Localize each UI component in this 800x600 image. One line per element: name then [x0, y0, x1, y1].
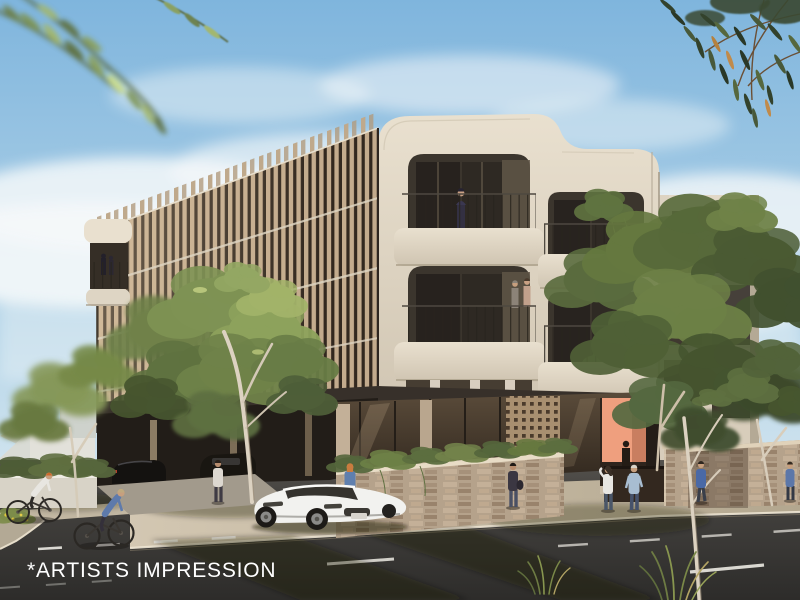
stone-pillar: [662, 444, 690, 506]
license-plate: [351, 513, 367, 519]
render-scene: [0, 0, 800, 600]
artists-impression-render: *ARTISTS IMPRESSION: [0, 0, 800, 600]
balcony-slab: [394, 228, 544, 266]
artists-impression-caption: *ARTISTS IMPRESSION: [27, 559, 276, 583]
parked-car-dark-1: [112, 460, 166, 484]
